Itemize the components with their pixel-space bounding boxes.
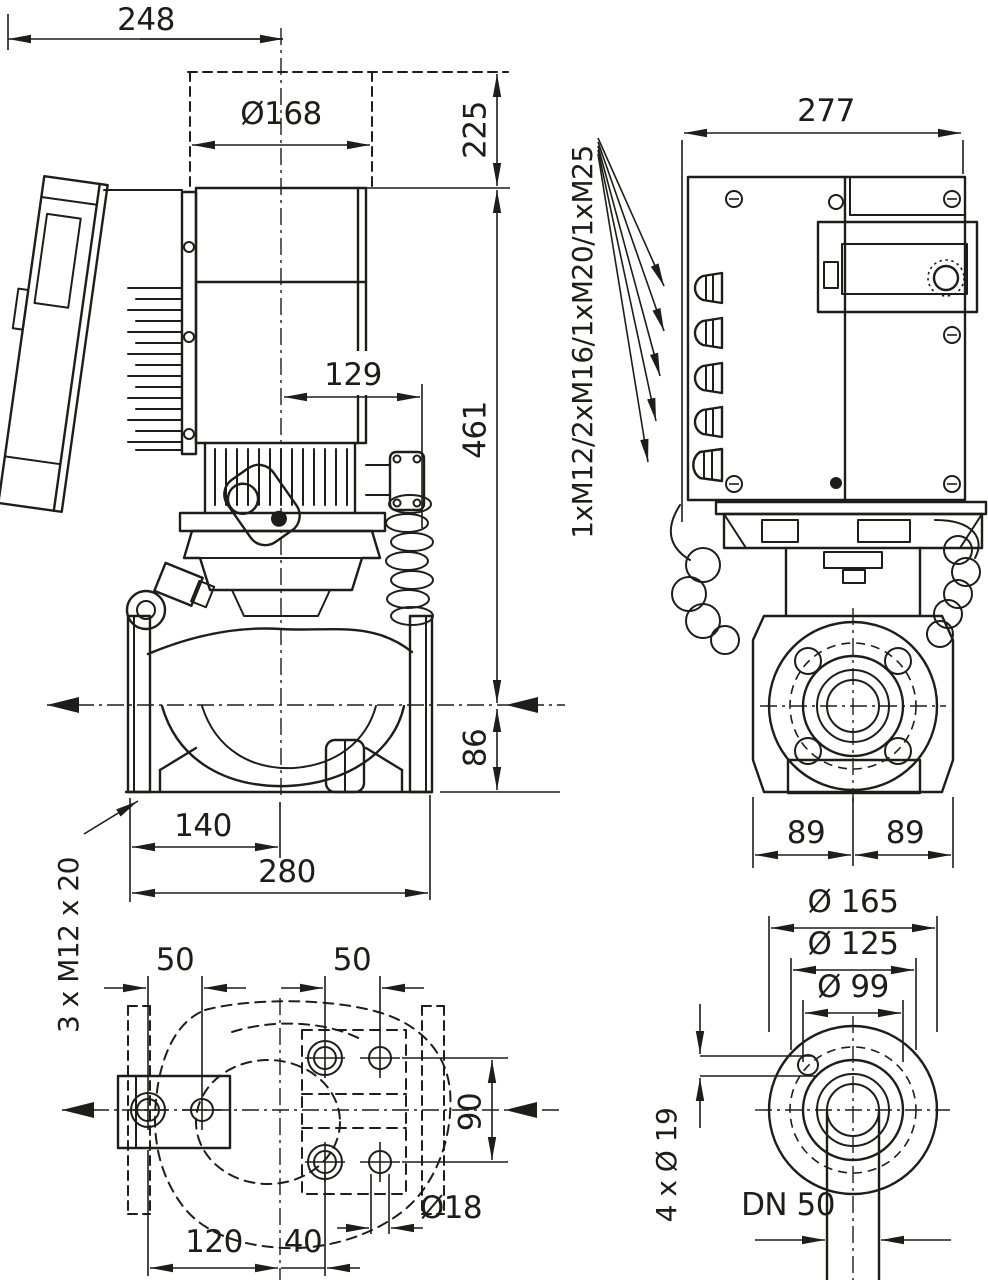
terminal-lug bbox=[366, 452, 424, 510]
cable-glands bbox=[693, 273, 722, 481]
bolt-hole-marker bbox=[128, 1090, 168, 1130]
plate-slot bbox=[762, 520, 798, 542]
dim-label-40: 40 bbox=[284, 1224, 322, 1260]
dim-nominal-bore: DN 50 bbox=[741, 1187, 951, 1240]
coupling-guard bbox=[217, 458, 306, 552]
dim-center-to-top: 461 bbox=[458, 190, 498, 703]
terminal-box bbox=[688, 177, 965, 500]
dim-motor-diameter: Ø168 bbox=[192, 96, 370, 145]
dim-label-277: 277 bbox=[797, 93, 855, 129]
side-view: 248 Ø168 225 461 86 bbox=[0, 2, 565, 1033]
dim-overall-width: 277 bbox=[682, 93, 963, 522]
note-foot-bolts: 3 x M12 x 20 bbox=[52, 801, 138, 1033]
control-module bbox=[0, 175, 108, 512]
dim-label-90: 90 bbox=[453, 1093, 489, 1131]
dim-hole-pitch-vertical: 90 bbox=[402, 1058, 508, 1162]
rear-view: 277 1xM12/2xM16/1xM20/1xM25 89 89 bbox=[566, 93, 986, 868]
cable-gland bbox=[695, 407, 722, 437]
note-label-cable-glands: 1xM12/2xM16/1xM20/1xM25 bbox=[566, 145, 599, 539]
cable-gland-large bbox=[693, 449, 722, 481]
cable-coil-left bbox=[671, 505, 739, 654]
drawing-page: 248 Ø168 225 461 86 bbox=[0, 0, 988, 1280]
cable-gland bbox=[695, 363, 722, 393]
motor-fins bbox=[128, 288, 182, 450]
dim-label-168: Ø168 bbox=[240, 96, 322, 132]
note-label-foot-bolts: 3 x M12 x 20 bbox=[52, 857, 85, 1033]
bolt-hole-marker bbox=[182, 1090, 222, 1130]
flange-face-view: Ø 165 Ø 125 Ø 99 4 x Ø 19 DN 50 bbox=[650, 884, 951, 1280]
dim-label-50-right: 50 bbox=[333, 942, 371, 978]
control-knob bbox=[934, 266, 958, 290]
motor-screw bbox=[184, 242, 194, 252]
dim-pitch-short: 40 bbox=[281, 1174, 360, 1276]
pump-lantern bbox=[180, 513, 385, 616]
dim-label-99: Ø 99 bbox=[817, 969, 889, 1005]
vent-plug bbox=[127, 563, 216, 629]
cable-gland bbox=[695, 318, 722, 348]
dim-label-140: 140 bbox=[174, 808, 232, 844]
flow-arrow-right bbox=[506, 697, 538, 713]
motor-screw bbox=[184, 429, 194, 439]
dim-label-165: Ø 165 bbox=[808, 884, 899, 920]
box-plug bbox=[830, 477, 842, 489]
suction-flange bbox=[410, 616, 432, 792]
dim-label-86: 86 bbox=[458, 729, 494, 767]
dim-label-89-left: 89 bbox=[787, 815, 825, 851]
display-button bbox=[824, 262, 838, 288]
dim-label-129: 129 bbox=[324, 357, 382, 393]
display-module bbox=[818, 222, 977, 312]
base-plan-view: 50 50 90 Ø18 120 bbox=[62, 942, 560, 1280]
plate-slot bbox=[858, 520, 910, 542]
dim-center-to-coil: 129 bbox=[284, 351, 422, 528]
volute-casing bbox=[126, 628, 432, 792]
dim-hole-pitch-left: 50 bbox=[104, 942, 246, 1090]
dim-label-89-right: 89 bbox=[886, 815, 924, 851]
dim-label-280: 280 bbox=[258, 854, 316, 890]
dim-label-125: Ø 125 bbox=[808, 926, 899, 962]
motor-screw bbox=[184, 332, 194, 342]
dim-label-248: 248 bbox=[117, 2, 175, 38]
module-connector bbox=[13, 289, 28, 330]
dim-label-461: 461 bbox=[458, 401, 494, 459]
bolt-hole-marker bbox=[360, 1142, 400, 1182]
rear-lantern bbox=[786, 548, 920, 616]
dimensional-drawing: 248 Ø168 225 461 86 bbox=[0, 0, 988, 1280]
cable-gland bbox=[695, 273, 722, 303]
flow-arrow-left bbox=[62, 1102, 94, 1118]
mounting-plate bbox=[716, 502, 986, 548]
box-hole bbox=[829, 195, 843, 209]
dim-center-to-base: 86 bbox=[440, 709, 560, 792]
sensor-coil bbox=[386, 495, 433, 625]
module-display bbox=[35, 214, 81, 308]
dim-label-120: 120 bbox=[185, 1224, 243, 1260]
dim-module-height: 225 bbox=[366, 74, 510, 188]
dim-hole-diameter: Ø18 bbox=[337, 1174, 482, 1234]
note-cable-glands: 1xM12/2xM16/1xM20/1xM25 bbox=[566, 138, 664, 539]
dim-label-4xo19: 4 x Ø 19 bbox=[650, 1108, 683, 1223]
cable-coil-right bbox=[927, 520, 980, 647]
coupling-section bbox=[205, 443, 355, 552]
dim-overall-depth: 248 bbox=[8, 2, 283, 50]
dim-label-dn50: DN 50 bbox=[741, 1187, 835, 1223]
dim-label-50-left: 50 bbox=[156, 942, 194, 978]
dim-label-225: 225 bbox=[458, 101, 494, 159]
dim-label-o18: Ø18 bbox=[420, 1190, 482, 1226]
dim-pitch-long: 120 bbox=[148, 1150, 278, 1276]
dim-half-widths: 89 89 bbox=[753, 797, 953, 868]
display-window bbox=[842, 244, 967, 294]
flow-arrow-left bbox=[47, 697, 79, 713]
discharge-flange bbox=[128, 616, 150, 792]
flow-arrow-mid bbox=[505, 1102, 537, 1118]
bolt-hole-marker bbox=[360, 1038, 400, 1078]
